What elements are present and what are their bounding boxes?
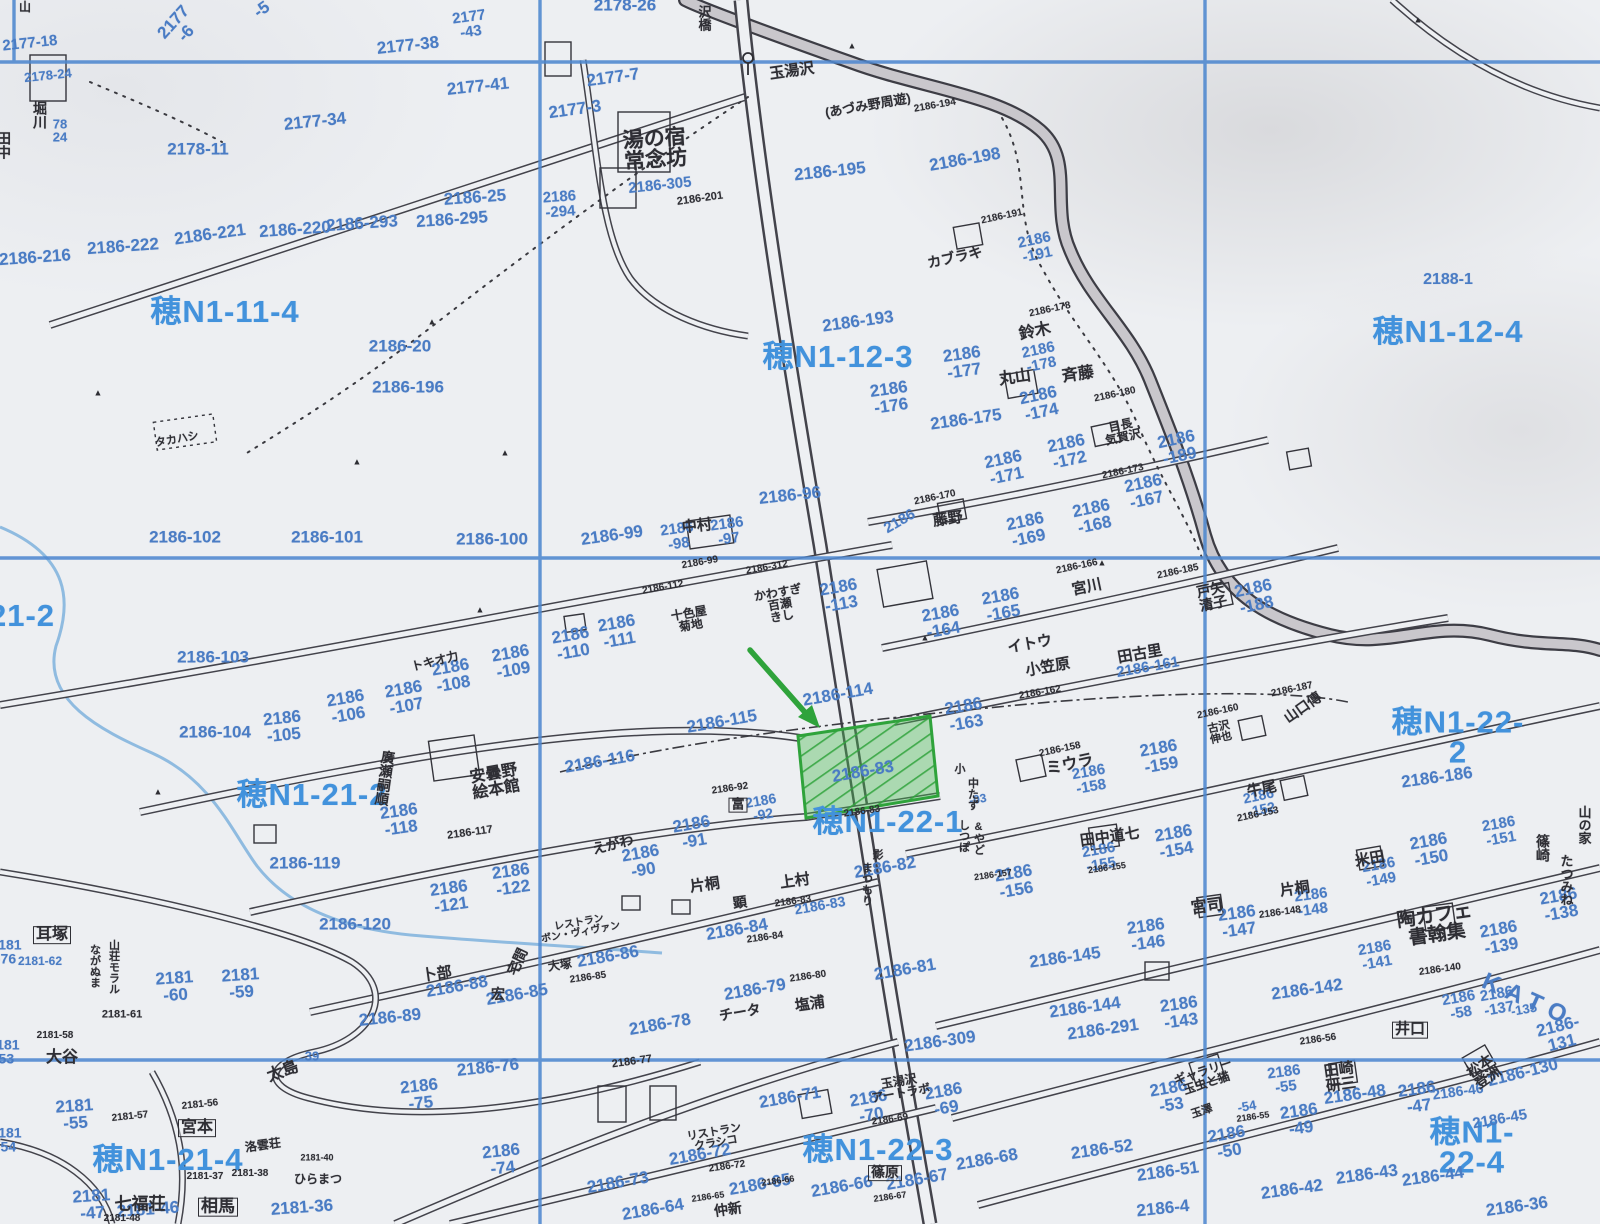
name-label: トキオ力 xyxy=(410,650,459,673)
parcel-number: 2186 -165 xyxy=(980,585,1023,624)
name-label: 2186-77 xyxy=(611,1054,652,1070)
parcel-number: 2186 -139 xyxy=(1478,918,1521,957)
parcel-number: -135 xyxy=(1510,1001,1538,1018)
parcel-number: 2186 -147 xyxy=(1217,903,1259,941)
name-label: 松本 登洲 xyxy=(1465,1053,1504,1092)
name-label: 山の家 xyxy=(1578,806,1591,845)
name-label: 2186-112 xyxy=(642,580,685,597)
parcel-number: 2186 -174 xyxy=(1018,384,1062,424)
survey-mark: ▲ xyxy=(921,634,930,643)
name-label: 2186-187 xyxy=(1270,681,1313,699)
name-label: 沢橋 xyxy=(698,5,711,31)
parcel-number: 2186 -138 xyxy=(1538,885,1581,924)
parcel-number: 2186-78 xyxy=(628,1011,692,1038)
parcel-number: 2186 -178 xyxy=(1021,340,1060,376)
parcel-number: 2186-145 xyxy=(1028,945,1101,971)
name-label: 山 xyxy=(19,2,31,14)
name-label: 十色屋 菊地 xyxy=(670,605,710,634)
parcel-number: 2186-130 xyxy=(1486,1056,1560,1090)
parcel-number: 78 24 xyxy=(53,118,67,143)
parcel-number: 2181-36 xyxy=(270,1198,333,1219)
name-label: 2186-72 xyxy=(708,1160,746,1175)
name-label: 井口 xyxy=(1392,1022,1428,1039)
name-label: 米田 xyxy=(1354,850,1386,870)
parcel-number: 2186-83 xyxy=(794,895,847,917)
name-label: 安曇野 絵本館 xyxy=(469,762,522,801)
parcel-number: 2186 -171 xyxy=(983,448,1027,488)
parcel-number: 2186-79 xyxy=(723,976,787,1003)
name-label: 塩浦 xyxy=(794,996,826,1015)
parcel-number: 2186 -176 xyxy=(869,379,911,417)
parcel-number: 2186 -98 xyxy=(659,520,696,554)
name-label: 古沢 伸也 xyxy=(1207,720,1233,746)
parcel-number: 2186-48 xyxy=(1323,1082,1387,1107)
parcel-number: 2186 -155 xyxy=(1081,841,1119,876)
parcel-number: 2186-84 xyxy=(705,916,769,943)
name-label: 宏 xyxy=(491,988,505,1002)
parcel-number: 2177-18 xyxy=(2,34,58,54)
parcel-number: 2186-221 xyxy=(173,222,246,248)
name-label: ながぬま xyxy=(89,944,100,988)
parcel-number: 2186 -69 xyxy=(923,1080,966,1119)
parcel-number: 2181 -47 xyxy=(72,1187,112,1223)
name-label: 田古里 xyxy=(1117,644,1164,666)
name-label: 玉湯沢 xyxy=(769,62,816,83)
parcel-number: 2186 -55 xyxy=(1266,1063,1303,1097)
parcel-number: 2186-71 xyxy=(758,1084,822,1111)
name-label: 2181-58 xyxy=(37,1031,74,1041)
parcel-number: 2186-102 xyxy=(149,530,221,547)
parcel-number: 2177-34 xyxy=(283,110,347,133)
name-label: 顕 xyxy=(732,895,748,911)
parcel-number: 2186-85 xyxy=(485,981,549,1008)
parcel-number: 2186 -109 xyxy=(490,642,533,681)
parcel-number: 2186-72 xyxy=(668,1141,732,1168)
name-label: 2186-162 xyxy=(1018,685,1061,702)
parcel-number: 2186-198 xyxy=(928,146,1002,175)
parcel-number: -5 xyxy=(251,0,273,21)
survey-mark: ▲ xyxy=(501,449,510,458)
name-label: 湯の宿 常念坊 xyxy=(622,127,688,172)
parcel-number: 2186-20 xyxy=(369,339,431,356)
parcel-number: 2186-120 xyxy=(319,917,391,934)
parcel-number: 2186-222 xyxy=(87,236,160,258)
name-label: 2186-173 xyxy=(1101,463,1144,481)
name-label: 戸矢 清子 xyxy=(1195,581,1228,614)
parcel-number: 2186-36 xyxy=(1485,1194,1549,1219)
survey-mark: ▲ xyxy=(353,458,362,467)
parcel-number: 2186-103 xyxy=(177,650,249,667)
parcel-number: 2186-76 xyxy=(456,1056,520,1079)
parcel-number: 2181-62 xyxy=(18,956,62,968)
parcel-number: 2186 -118 xyxy=(379,801,421,839)
parcel-number: 2186-309 xyxy=(903,1029,976,1055)
parcel-number: 2186 -191 xyxy=(1017,230,1056,266)
parcel-number: 2186-119 xyxy=(270,856,341,873)
parcel-number: 2186 -189 xyxy=(1156,428,1200,468)
parcel-number: 2186 -121 xyxy=(429,878,471,916)
parcel-number: 2177-41 xyxy=(446,75,510,98)
parcel-number: 2186 -172 xyxy=(1046,432,1090,472)
name-label: 耳塚 xyxy=(33,926,71,944)
parcel-number: 2186 -75 xyxy=(399,1076,440,1113)
name-label: 堀川 xyxy=(33,101,47,129)
name-label: 2186-67 xyxy=(873,1190,907,1203)
parcel-number: 39 xyxy=(305,1051,319,1064)
name-label: 目長 気賀沢 xyxy=(1102,417,1142,447)
name-label: 2186-157 xyxy=(974,868,1013,882)
name-label: 宮川 xyxy=(1071,578,1103,599)
parcel-number: 2177-38 xyxy=(376,34,440,57)
parcel-number: 2186-104 xyxy=(179,725,251,742)
parcel-number: 2186 -177 xyxy=(942,344,984,382)
name-label: 2186-65 xyxy=(691,1190,725,1203)
parcel-number: 2178-24 xyxy=(24,67,73,85)
name-label: 2181-40 xyxy=(300,1154,333,1163)
parcel-number: 2186 -188 xyxy=(1233,577,1277,617)
parcel-number: 2177-7 xyxy=(586,66,641,90)
parcel-number: 2186-52 xyxy=(1070,1137,1134,1162)
name-label: えがわ xyxy=(591,833,635,856)
name-label: 卜部 xyxy=(421,966,453,985)
parcel-number: 2186-96 xyxy=(758,484,822,507)
survey-mark: ▲ xyxy=(154,788,163,797)
section-label: 穂N1-11-4 xyxy=(150,297,299,327)
parcel-number: 2186 -110 xyxy=(550,624,593,663)
name-label: 影 xyxy=(873,851,884,862)
parcel-number: 2186-65 xyxy=(728,1171,792,1198)
parcel-number: 2186 -141 xyxy=(1357,939,1395,974)
name-label: 2186-66 xyxy=(761,1174,795,1187)
parcel-number: 2186-43 xyxy=(1335,1162,1399,1187)
name-label: 上村 xyxy=(779,873,811,892)
name-label: まつもり xyxy=(861,862,872,906)
section-label: 穂N1-22-3 xyxy=(803,1135,954,1165)
parcel-number: 2186 -143 xyxy=(1159,994,1201,1032)
section-label: 穂N1-22-1 xyxy=(813,807,964,837)
survey-mark: ▲ xyxy=(848,42,857,51)
name-label: 牛尾 xyxy=(1246,780,1278,801)
parcel-number: 2181 -60 xyxy=(155,969,195,1005)
parcel-number: -54 xyxy=(1237,1099,1258,1115)
parcel-number: 2186 -163 xyxy=(943,695,986,734)
name-label: 2186-92 xyxy=(711,782,749,797)
parcel-number: 2186-220 xyxy=(259,219,332,241)
parcel-number: 2177 -6 xyxy=(155,3,205,53)
parcel-number: 2186 -70 xyxy=(848,1087,891,1126)
name-label: 斉藤 xyxy=(1061,365,1095,385)
name-label: 2186-180 xyxy=(1093,386,1136,404)
parcel-number: 2186-66 xyxy=(810,1173,874,1200)
name-label: 大塚 xyxy=(547,959,572,974)
name-label: 2186-178 xyxy=(1028,301,1071,319)
name-label: 太島 xyxy=(265,1059,300,1085)
name-label: 2186-83 xyxy=(843,805,881,820)
parcel-number: 2186 -152 xyxy=(1242,786,1278,819)
name-label: 田中 xyxy=(0,131,11,159)
parcel-number: 2186-195 xyxy=(793,160,866,184)
name-label: 2186-160 xyxy=(1196,703,1239,721)
parcel-number: 2186-83 xyxy=(831,758,895,785)
name-label: 2181-56 xyxy=(181,1098,219,1112)
name-label: チータ xyxy=(718,1003,762,1024)
section-label: 穂N1-21-2 xyxy=(237,780,388,810)
name-label: 宮本 xyxy=(178,1119,216,1137)
parcel-number: 2186-114 xyxy=(802,681,875,710)
parcel-number: 2186-196 xyxy=(372,380,444,397)
survey-mark: ▲ xyxy=(1098,559,1107,568)
name-label: イトウ xyxy=(1007,634,1054,656)
parcel-number: 2181 -76 xyxy=(0,938,22,965)
name-label: 2186-80 xyxy=(789,970,827,985)
parcel-number: 2186-4 xyxy=(1136,1198,1190,1220)
parcel-number: 2186 -50 xyxy=(1206,1123,1249,1162)
section-label: 穂N1-22-2 xyxy=(1387,708,1529,769)
parcel-number: 2186-295 xyxy=(416,209,489,231)
parcel-number: 2186-144 xyxy=(1048,995,1121,1021)
parcel-number: 2186 -164 xyxy=(920,602,963,641)
parcel-number: 2186 -169 xyxy=(1005,510,1049,550)
parcel-number: -03 xyxy=(968,793,987,808)
survey-mark: ▲ xyxy=(94,389,103,398)
name-label: 相馬 xyxy=(198,1198,238,1217)
parcel-number: 2186 -108 xyxy=(430,656,473,695)
parcel-number: 2186-88 xyxy=(425,973,489,1000)
name-label: 富 xyxy=(728,798,747,813)
parcel-number: 2186 -111 xyxy=(596,612,639,651)
name-label: (あづみ野周遊) xyxy=(824,92,912,120)
name-label: かわすぎ 百瀬 きし xyxy=(753,583,806,626)
parcel-number: 2188-1 xyxy=(1423,272,1473,288)
section-label: 穂N1-12-4 xyxy=(1373,317,1524,347)
parcel-number: 2186 -146 xyxy=(1126,916,1168,954)
name-label: &やど xyxy=(973,821,984,855)
name-label: リストラン クラシコ xyxy=(686,1123,744,1154)
parcel-number: 2186 -105 xyxy=(262,708,303,745)
parcel-number: 2186-86 xyxy=(576,943,640,970)
parcel-number: 2178-26 xyxy=(594,0,656,14)
parcel-number: 2186 -113 xyxy=(818,576,861,615)
name-label: 2186-201 xyxy=(676,190,724,207)
parcel-number: 2186-44 xyxy=(1401,1164,1465,1189)
section-label: 穂N1-22-4 xyxy=(1408,1118,1536,1179)
parcel-number: 2186 -74 xyxy=(481,1141,522,1178)
parcel-number: 2186 -106 xyxy=(325,687,368,726)
map-labels: 穂N1-11-4穂N1-12-3穂N1-12-421-2穂N1-21-2穂N1-… xyxy=(0,0,1600,1224)
parcel-number: 2186-67 xyxy=(885,1166,949,1193)
name-label: 2186-99 xyxy=(681,555,719,571)
name-label: 宮司 xyxy=(1190,897,1224,917)
name-label: 七福荘 xyxy=(115,1197,166,1214)
name-label: カブラキ xyxy=(926,245,984,270)
parcel-number: 2186-51 xyxy=(1136,1159,1200,1184)
parcel-number: 2177 -43 xyxy=(451,8,488,42)
parcel-number: 2186 -92 xyxy=(744,792,779,824)
name-label: 田崎 研三 xyxy=(1323,1061,1357,1094)
parcel-number: 2186 -91 xyxy=(671,813,714,852)
parcel-number: 2186-64 xyxy=(621,1196,685,1223)
parcel-number: 2186-193 xyxy=(821,309,894,335)
parcel-number: 2186-293 xyxy=(326,213,399,235)
name-label: 山口傳 xyxy=(1282,690,1324,725)
name-label: タカハシ xyxy=(154,431,199,449)
name-label: 2186-55 xyxy=(1236,1110,1270,1123)
parcel-number: 2186 -53 xyxy=(1148,1077,1191,1116)
parcel-number: 2186-186 xyxy=(1400,765,1473,791)
name-label: 2186-185 xyxy=(1156,563,1199,581)
parcel-number: 2186-216 xyxy=(0,247,71,269)
name-label: しつぽ xyxy=(958,820,969,853)
name-label: 2186-83 xyxy=(774,895,812,910)
name-label: 2186-84 xyxy=(746,931,784,946)
parcel-number: 2186 -294 xyxy=(542,189,577,221)
parcel-number: 2186-99 xyxy=(580,523,644,548)
name-label: 2186-153 xyxy=(1236,806,1279,824)
name-label: ミウラ xyxy=(1045,752,1095,777)
parcel-number: 2186 -168 xyxy=(1071,497,1115,537)
parcel-number: 2186 -137 xyxy=(1479,985,1517,1020)
parcel-number: 2186-291 xyxy=(1066,1017,1139,1043)
name-label: 2186-140 xyxy=(1418,962,1461,978)
parcel-number: 2186-305 xyxy=(628,175,693,196)
parcel-number: 2186-115 xyxy=(686,708,759,737)
parcel-number: 2186 -149 xyxy=(1361,856,1399,891)
survey-mark: ▲ xyxy=(428,318,437,327)
name-label: 中村 xyxy=(681,518,712,536)
parcel-number: 2186 -151 xyxy=(1481,815,1519,850)
parcel-number: 2178-11 xyxy=(167,142,228,159)
parcel-number: 2181 -55 xyxy=(55,1097,95,1133)
parcel-number: 2181 -54 xyxy=(0,1126,22,1153)
parcel-number: 2186-68 xyxy=(955,1146,1019,1173)
parcel-number: 2186-82 xyxy=(853,854,917,881)
name-label: 2186-194 xyxy=(913,98,956,115)
parcel-number: 2186-46 xyxy=(1432,1082,1485,1103)
name-label: ギャラリー 玉虫と猫 xyxy=(1173,1058,1237,1099)
parcel-number: KATO xyxy=(1479,969,1578,1030)
parcel-number: 2186 -156 xyxy=(993,862,1036,901)
parcel-number: 2181 -53 xyxy=(0,1038,20,1065)
name-label: 篠崎 xyxy=(1536,834,1550,862)
parcel-number: 2186 -159 xyxy=(1138,737,1181,776)
survey-mark: ▲ xyxy=(476,606,485,615)
name-label: 篠原 xyxy=(868,1165,902,1181)
parcel-number: 2186-73 xyxy=(586,1169,650,1196)
survey-mark: ▲ xyxy=(1414,16,1423,25)
name-label: 大谷 xyxy=(46,1050,78,1066)
section-label: 穂N1-21-4 xyxy=(93,1145,244,1175)
parcel-number: 2186-116 xyxy=(564,748,637,777)
parcel-number: 2186 -158 xyxy=(1071,763,1109,798)
cadastral-map[interactable]: 穂N1-11-4穂N1-12-3穂N1-12-421-2穂N1-21-2穂N1-… xyxy=(0,0,1600,1224)
name-label: 田中道七 xyxy=(1079,827,1140,850)
name-label: 2181-37 xyxy=(187,1172,224,1182)
name-label: 2181-61 xyxy=(102,1010,142,1021)
parcel-number: 2186 -154 xyxy=(1153,822,1196,861)
parcel-number: 2186-142 xyxy=(1270,977,1343,1003)
name-label: 2186-155 xyxy=(1088,861,1127,875)
parcel-number: 2186-25 xyxy=(443,188,506,209)
name-label: 小 xyxy=(955,765,966,776)
parcel-number: 2186-101 xyxy=(291,530,363,547)
parcel-number: 2186 -47 xyxy=(1397,1079,1439,1117)
parcel-number: 2186-81 xyxy=(873,956,937,983)
name-label: 藤野 xyxy=(932,511,964,530)
parcel-number: 2186 -107 xyxy=(383,678,426,717)
name-label: 2181-57 xyxy=(111,1110,149,1124)
name-label: 2186-56 xyxy=(1299,1033,1337,1048)
name-label: 洛雲荘 xyxy=(244,1138,281,1155)
parcel-number: 2186-89 xyxy=(358,1006,422,1029)
parcel-number: 2186 -167 xyxy=(1123,472,1167,512)
section-label: 穂N1-12-3 xyxy=(763,342,914,372)
name-label: 丸山 xyxy=(998,368,1032,388)
parcel-number: 2186 xyxy=(882,507,918,536)
name-label: 中たず xyxy=(967,778,978,811)
name-label: 鈴木 xyxy=(1018,321,1053,343)
name-label: 2186-69 xyxy=(871,1113,909,1128)
name-label: 2186-170 xyxy=(913,489,956,507)
parcel-number: 2186 -122 xyxy=(491,861,533,899)
name-label: 片桐 xyxy=(1279,881,1311,900)
name-label: 玉湯沢 アートラボ xyxy=(869,1071,931,1104)
name-label: 山荘モラル xyxy=(108,940,119,995)
name-label: 片桐 xyxy=(689,877,721,896)
parcel-number: 2177-3 xyxy=(548,98,603,122)
parcel-number: 2186-45 xyxy=(1472,1108,1529,1132)
parcel-number: 2186 -150 xyxy=(1408,830,1451,869)
name-label: 2186-191 xyxy=(980,208,1023,226)
name-label: 2186-148 xyxy=(1258,905,1301,921)
name-label: 陶カフェ 書翰集 xyxy=(1396,902,1476,949)
parcel-number: 2186 -90 xyxy=(620,842,663,881)
parcel-number: 2186 -49 xyxy=(1279,1101,1321,1139)
parcel-number: 2186 -148 xyxy=(1293,886,1330,920)
name-label: 2186-158 xyxy=(1038,741,1081,759)
name-label: 宅間 xyxy=(506,946,530,977)
name-label: 仲新 xyxy=(713,1201,743,1218)
parcel-number: 2181-46 xyxy=(116,1200,179,1221)
name-label: 玉澤 xyxy=(1190,1103,1214,1120)
name-label: 2186-166 xyxy=(1055,558,1098,576)
name-label: 廣瀬嗣順 xyxy=(374,749,396,806)
name-label: 小笠原 xyxy=(1025,657,1072,679)
name-label: 2186-117 xyxy=(447,824,494,841)
parcel-number: 2186-100 xyxy=(456,532,528,549)
name-label: レストラン ボン・ヴィヴァン xyxy=(539,911,621,944)
parcel-number: 2181 -59 xyxy=(221,966,261,1002)
name-label: 2181-38 xyxy=(232,1169,269,1179)
parcel-number: 2186-175 xyxy=(929,407,1002,433)
parcel-number: 2186-42 xyxy=(1260,1177,1324,1202)
name-label: ひらまつ xyxy=(294,1174,342,1186)
name-label: 2181-48 xyxy=(104,1214,141,1224)
parcel-number: 2186-161 xyxy=(1116,655,1181,680)
name-label: 2186-85 xyxy=(569,971,607,986)
name-label: たつみね xyxy=(1560,854,1573,906)
section-label: 21-2 xyxy=(0,601,55,631)
parcel-number: 2186-131 xyxy=(1535,1014,1585,1057)
parcel-number: 2186 -58 xyxy=(1441,989,1479,1024)
parcel-number: 2186 -97 xyxy=(709,515,746,549)
name-label: 2186-312 xyxy=(745,560,788,577)
